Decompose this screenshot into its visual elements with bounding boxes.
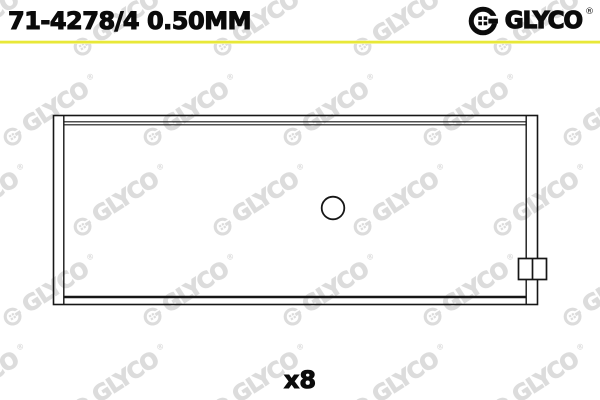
brand-logo: GLYCO ® — [467, 4, 594, 38]
header-divider-line — [0, 41, 600, 43]
bearing-outline — [54, 116, 538, 305]
part-number: 71-4278/4 0.50MM — [8, 7, 251, 35]
glyco-logo-icon — [467, 5, 499, 37]
oil-hole — [322, 197, 345, 220]
quantity-label: x8 — [0, 366, 600, 394]
registered-trademark: ® — [585, 7, 594, 17]
brand-name: GLYCO — [505, 10, 582, 33]
locating-lug — [519, 259, 547, 280]
product-image: GLYCO®GLYCO®GLYCO®GLYCO®GLYCO®GLYCO®GLYC… — [0, 0, 600, 400]
bearing-drawing — [0, 0, 600, 400]
header: 71-4278/4 0.50MM GLYCO ® — [0, 0, 600, 41]
